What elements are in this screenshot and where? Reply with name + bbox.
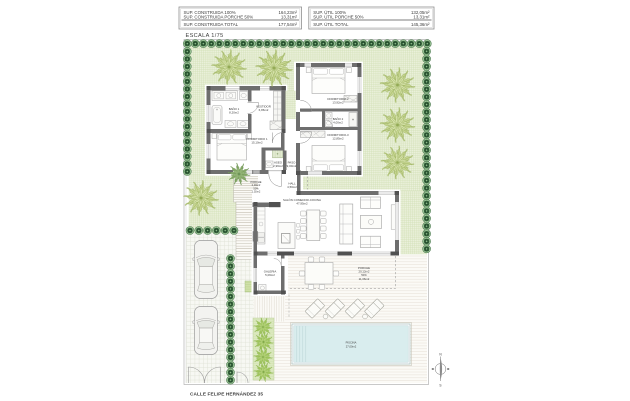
svg-text:15,10m2: 15,10m2 bbox=[251, 141, 263, 145]
svg-text:8,20m2: 8,20m2 bbox=[229, 111, 239, 115]
svg-text:13,92m2: 13,92m2 bbox=[332, 101, 344, 105]
svg-text:S: S bbox=[439, 384, 441, 388]
svg-text:SUP. ÚTIL PORCHE 50%: SUP. ÚTIL PORCHE 50% bbox=[313, 15, 363, 20]
svg-text:SUP. ÚTIL TOTAL: SUP. ÚTIL TOTAL bbox=[313, 22, 349, 27]
svg-text:9,00m2: 9,00m2 bbox=[287, 164, 297, 168]
svg-text:SUP. CONSTRUIDA PORCHE 50%: SUP. CONSTRUIDA PORCHE 50% bbox=[184, 15, 254, 20]
svg-text:145,36m²: 145,36m² bbox=[411, 22, 430, 27]
svg-text:12,85m2: 12,85m2 bbox=[332, 137, 344, 141]
svg-text:ESCALA 1/75: ESCALA 1/75 bbox=[186, 33, 224, 39]
svg-text:CALLE FELIPE HERNÁNDEZ 35: CALLE FELIPE HERNÁNDEZ 35 bbox=[190, 391, 263, 397]
svg-text:47,95m2: 47,95m2 bbox=[296, 202, 308, 206]
svg-text:4,56m2: 4,56m2 bbox=[287, 185, 297, 189]
svg-text:6,86m2: 6,86m2 bbox=[259, 108, 269, 112]
svg-text:2,96m2: 2,96m2 bbox=[273, 164, 283, 168]
svg-text:11,06m2: 11,06m2 bbox=[359, 277, 370, 281]
svg-text:13,31m²: 13,31m² bbox=[413, 15, 430, 20]
svg-text:177,54m²: 177,54m² bbox=[278, 22, 297, 27]
svg-text:4,00m2: 4,00m2 bbox=[333, 121, 343, 125]
svg-text:13,31m²: 13,31m² bbox=[281, 15, 298, 20]
svg-text:5,06m2: 5,06m2 bbox=[265, 273, 275, 277]
svg-text:PISCINA: PISCINA bbox=[346, 341, 357, 345]
svg-text:SUP. CONSTRUIDA TOTAL: SUP. CONSTRUIDA TOTAL bbox=[184, 22, 239, 27]
svg-text:27,00m2: 27,00m2 bbox=[346, 344, 357, 348]
svg-text:1,02m2: 1,02m2 bbox=[252, 190, 261, 194]
